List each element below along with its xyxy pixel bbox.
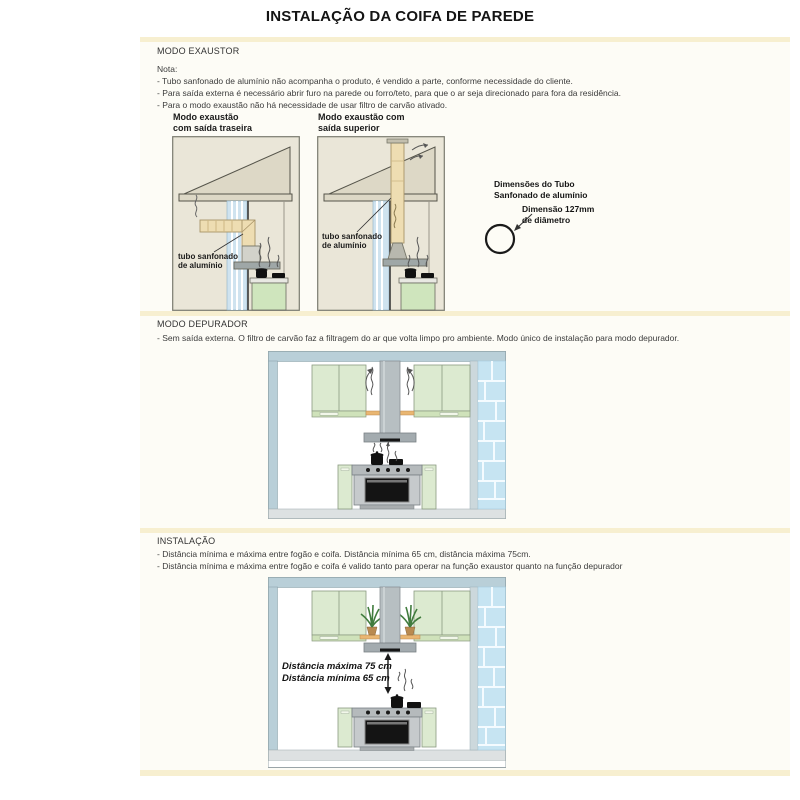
exaustor-note-1: - Tubo sanfonado de alumínio não acompan…	[157, 76, 782, 86]
cabinet-light	[320, 413, 338, 416]
pan-icon	[389, 459, 403, 465]
diagram-top-title-line2: saída superior	[318, 123, 405, 134]
dims-value-line2: de diâmetro	[522, 215, 570, 225]
diagram-rear-title-line2: com saída traseira	[173, 123, 252, 134]
distance-max-label: Distância máxima 75 cm	[282, 661, 392, 672]
left-wall	[269, 587, 278, 750]
duct-label-line2: de alumínio	[322, 241, 367, 250]
floor	[269, 750, 506, 761]
hood-filter-strip	[380, 439, 400, 442]
diagram-top-title-line1: Modo exaustão com	[318, 112, 405, 123]
exaustor-note-2: - Para saída externa é necessário abrir …	[157, 88, 782, 98]
ceiling	[269, 352, 506, 362]
left-wall	[269, 361, 278, 509]
ceiling	[269, 578, 506, 588]
pan-icon	[421, 273, 434, 278]
cabinet-light	[320, 637, 338, 640]
instalacao-header: INSTALAÇÃO	[157, 536, 215, 546]
tube-diameter-circle	[486, 225, 514, 253]
tube-dimensions-callout: Dimensões do Tubo Sanfonado de alumínio …	[478, 175, 653, 260]
shelf-strip	[360, 635, 380, 639]
instalacao-note-2: - Distância mínima e máxima entre fogão …	[157, 561, 782, 571]
instalacao-note-1: - Distância mínima e máxima entre fogão …	[157, 549, 782, 559]
dims-heading-line2: Sanfonado de alumínio	[494, 190, 588, 200]
plant-pot	[367, 627, 377, 635]
dims-heading-line1: Dimensões do Tubo	[494, 179, 575, 189]
diagram-top-outlet: tubo sanfonado de alumínio	[317, 136, 445, 311]
exaustor-note-3: - Para o modo exaustão não há necessidad…	[157, 100, 782, 110]
cabinet-light	[440, 413, 458, 416]
distance-min-label: Distância mínima 65 cm	[282, 673, 390, 684]
shelf-strip	[366, 411, 380, 415]
brick-wall	[470, 587, 506, 750]
cabinet-light	[440, 637, 458, 640]
duct-label-line2: de alumínio	[178, 261, 223, 270]
duct-label-line1: tubo sanfonado	[322, 232, 382, 241]
section-divider-bottom	[140, 770, 790, 776]
diagram-rear-title-line1: Modo exaustão	[173, 112, 252, 123]
depurador-header: MODO DEPURADOR	[157, 319, 248, 329]
diagram-rear-title: Modo exaustão com saída traseira	[173, 112, 252, 134]
diagram-top-title: Modo exaustão com saída superior	[318, 112, 405, 134]
duct-cap	[387, 139, 408, 143]
pan-icon	[272, 273, 285, 278]
brick-wall	[470, 361, 506, 509]
shelf-strip	[400, 635, 420, 639]
floor-margin	[269, 761, 506, 767]
kitchen-illustration-depurador	[268, 351, 506, 519]
dims-value-line1: Dimensão 127mm	[522, 204, 595, 214]
plant-pot	[405, 627, 415, 635]
pan-icon	[407, 702, 421, 708]
hood-filter-strip	[380, 649, 400, 652]
page-title: INSTALAÇÃO DA COIFA DE PAREDE	[0, 8, 800, 25]
exaustor-header: MODO EXAUSTOR	[157, 46, 239, 56]
diagram-rear-outlet: tubo sanfonado de alumínio	[172, 136, 300, 311]
depurador-description: - Sem saída externa. O filtro de carvão …	[157, 333, 782, 343]
duct-label-line1: tubo sanfonado	[178, 252, 238, 261]
exaustor-note-label: Nota:	[157, 64, 177, 74]
kitchen-illustration-instalacao: Distância máxima 75 cm Distância mínima …	[268, 577, 506, 768]
floor	[269, 509, 506, 519]
shelf-strip	[400, 411, 414, 415]
